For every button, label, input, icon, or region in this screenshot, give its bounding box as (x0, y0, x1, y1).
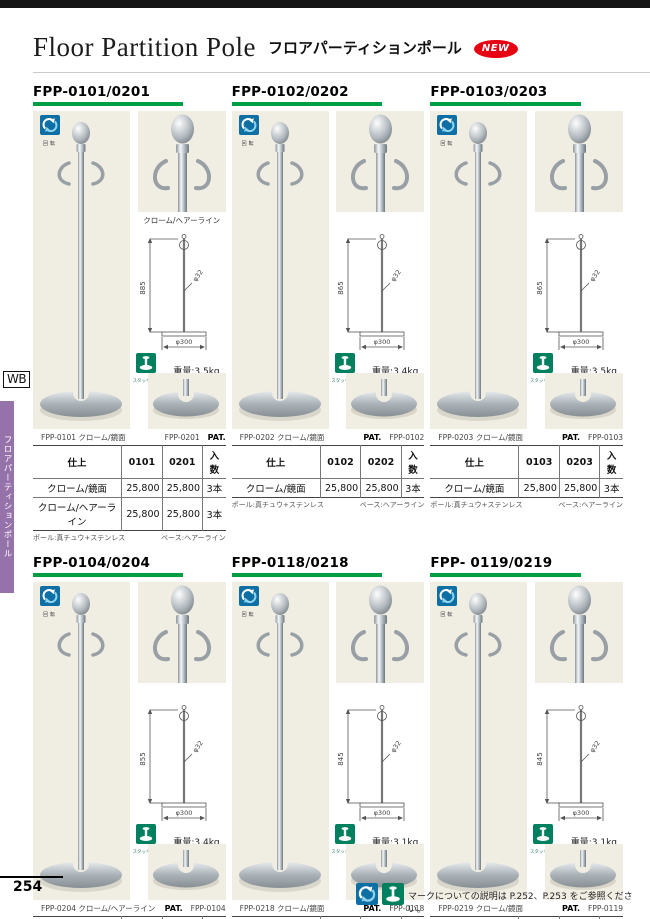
header-divider (33, 72, 650, 73)
pole-illustration (430, 111, 527, 429)
product-grid: FPP-0101/0201 (33, 84, 623, 919)
price-b-cell: 25,800 (361, 479, 401, 498)
col-finish: 仕上 (33, 446, 122, 479)
table-notes: ポール:真チュウ+ステンレス ベース:ヘアーライン (33, 533, 226, 543)
price-table-header-row: 仕上 0102 0202 入数 (232, 446, 425, 479)
product-photos: 回転 (430, 582, 623, 900)
dimension-diagram: 855 φ32 φ300 (136, 700, 226, 832)
base-diameter-dimension: φ300 (573, 338, 590, 346)
product-section: FPP-0118/0218 (232, 555, 425, 919)
col-model-a: 0102 (320, 446, 360, 479)
base-finish-note: ベース:ヘアーライン (161, 533, 226, 543)
pole-top-photo (138, 582, 226, 683)
pole-material-note: ポール:真チュウ+ステンレス (430, 500, 522, 510)
price-row: クローム/鏡面 25,800 25,800 3本 (232, 479, 425, 498)
product-code: FPP-0104/0204 (33, 555, 226, 571)
base-illustration (148, 844, 226, 900)
product-photos: 回転 (232, 111, 425, 429)
col-qty: 入数 (401, 446, 424, 479)
product-code: FPP-0102/0202 (232, 84, 425, 100)
base-photo (545, 373, 623, 429)
col-qty: 入数 (600, 446, 623, 479)
section-header: FPP-0102/0202 (232, 84, 425, 106)
price-a-cell: 25,800 (519, 479, 559, 498)
product-code: FPP-0118/0218 (232, 555, 425, 571)
price-a-cell: 25,800 (122, 498, 162, 531)
rotation-badge: 回転 (434, 115, 460, 147)
rotation-label: 回転 (43, 140, 57, 147)
base-diameter-dimension: φ300 (175, 338, 192, 346)
pole-top-illustration (535, 111, 623, 212)
section-header: FPP- 0119/0219 (430, 555, 623, 577)
rotation-label: 回転 (242, 611, 256, 618)
page-number: 254 (13, 879, 42, 895)
price-row: クローム/鏡面 25,800 25,800 3本 (430, 479, 623, 498)
pole-photo: 回転 (33, 582, 130, 900)
pole-top-illustration (336, 582, 424, 683)
product-section: FPP-0102/0202 (232, 84, 425, 543)
section-underline (33, 573, 183, 577)
section-header: FPP-0101/0201 (33, 84, 226, 106)
finish-label: クローム/ヘアーライン (138, 215, 226, 226)
caption-right: FPP-0102 (389, 433, 424, 442)
caption-mid: PAT. (363, 433, 381, 442)
pole-top-photo (336, 582, 424, 683)
col-finish: 仕上 (430, 446, 519, 479)
price-table: 仕上 0102 0202 入数 クローム/鏡面 25,800 25,800 3本 (232, 445, 425, 498)
rotation-label: 回転 (43, 611, 57, 618)
rotation-badge: 回転 (236, 586, 262, 618)
col-model-b: 0201 (162, 446, 202, 479)
price-table-header-row: 仕上 0101 0201 入数 (33, 446, 226, 479)
page-title: Floor Partition Pole (33, 34, 256, 61)
price-a-cell: 25,800 (122, 479, 162, 498)
price-b-cell: 25,800 (162, 498, 202, 531)
pole-photo: 回転 (33, 111, 130, 429)
qty-cell: 3本 (203, 479, 226, 498)
pole-illustration (430, 582, 527, 900)
pole-photo: 回転 (430, 582, 527, 900)
top-bar (0, 0, 650, 8)
pole-top-illustration (535, 582, 623, 683)
pole-diameter-dimension: φ32 (588, 268, 602, 283)
finish-cell: クローム/鏡面 (232, 479, 321, 498)
pole-height-dimension: 865 (536, 281, 544, 294)
new-badge: NEW (474, 40, 518, 58)
product-section: FPP- 0119/0219 (430, 555, 623, 919)
caption-left: FPP-0218 クローム/鏡面 (240, 903, 356, 914)
pole-photo: 回転 (232, 111, 329, 429)
product-section: FPP-0104/0204 (33, 555, 226, 919)
base-diameter-dimension: φ300 (374, 338, 391, 346)
product-code: FPP- 0119/0219 (430, 555, 623, 571)
base-finish-note: ベース:ヘアーライン (558, 500, 623, 510)
price-a-cell: 25,800 (320, 479, 360, 498)
photo-captions: FPP-0202 クローム/鏡面 PAT. FPP-0102 (232, 432, 425, 443)
col-model-b: 0203 (559, 446, 599, 479)
base-illustration (346, 373, 424, 429)
section-underline (430, 102, 580, 106)
page-header: Floor Partition Pole フロアパーティションポール NEW (33, 34, 640, 61)
section-underline (430, 573, 580, 577)
pole-material-note: ポール:真チュウ+ステンレス (232, 500, 324, 510)
table-notes: ポール:真チュウ+ステンレス ベース:ヘアーライン (430, 500, 623, 510)
product-photos: 回転 (430, 111, 623, 429)
pole-top-photo (336, 111, 424, 212)
product-section: FPP-0101/0201 (33, 84, 226, 543)
base-finish-note: ベース:ヘアーライン (360, 500, 425, 510)
caption-left: FPP-0204 クローム/ヘアーライン (41, 903, 157, 914)
base-illustration (545, 373, 623, 429)
product-section: FPP-0103/0203 (430, 84, 623, 543)
catalog-page: Floor Partition Pole フロアパーティションポール NEW W… (0, 0, 650, 919)
finish-cell: クローム/ヘアーライン (33, 498, 122, 531)
pole-height-dimension: 845 (337, 752, 345, 765)
rotation-icon (356, 883, 378, 909)
section-underline (33, 102, 183, 106)
rotation-badge: 回転 (37, 586, 63, 618)
footer-note-text: マークについての説明は P.252、P.253 をご参照ください。 (408, 883, 650, 915)
stacking-icon (382, 883, 404, 909)
rotation-label: 回転 (440, 611, 454, 618)
page-number-rule (0, 876, 63, 878)
qty-cell: 3本 (600, 479, 623, 498)
rotation-icon (40, 586, 60, 610)
base-diameter-dimension: φ300 (374, 809, 391, 817)
pole-photo: 回転 (232, 582, 329, 900)
base-photo (148, 844, 226, 900)
rotation-icon (40, 115, 60, 139)
caption-mid: FPP-0201 (165, 433, 200, 442)
caption-left: FPP-0202 クローム/鏡面 (240, 432, 356, 443)
col-qty: 入数 (203, 446, 226, 479)
col-finish: 仕上 (232, 446, 321, 479)
pole-top-illustration (138, 111, 226, 212)
dimension-diagram: 845 φ32 φ300 (533, 700, 623, 832)
pole-diameter-dimension: φ32 (191, 739, 205, 754)
pole-top-illustration (336, 111, 424, 212)
qty-cell: 3本 (401, 479, 424, 498)
pole-height-dimension: 855 (139, 752, 147, 765)
price-table-header-row: 仕上 0103 0203 入数 (430, 446, 623, 479)
base-diameter-dimension: φ300 (573, 809, 590, 817)
pole-height-dimension: 885 (139, 281, 147, 294)
rotation-icon (437, 115, 457, 139)
col-model-b: 0202 (361, 446, 401, 479)
caption-mid: PAT. (165, 904, 183, 913)
pole-illustration (232, 582, 329, 900)
rotation-label: 回転 (242, 140, 256, 147)
price-b-cell: 25,800 (559, 479, 599, 498)
rotation-badge: 回転 (236, 115, 262, 147)
sidebar-category-tab: フロアパーティションポール (0, 401, 14, 593)
dimension-diagram: 865 φ32 φ300 (533, 229, 623, 361)
section-underline (232, 573, 382, 577)
qty-cell: 3本 (203, 498, 226, 531)
rotation-label: 回転 (440, 140, 454, 147)
price-b-cell: 25,800 (162, 479, 202, 498)
rotation-icon (239, 586, 259, 610)
product-photos: 回転 クローム/ヘアーライン (33, 111, 226, 429)
pole-material-note: ポール:真チュウ+ステンレス (33, 533, 125, 543)
pole-top-illustration (138, 582, 226, 683)
finish-cell: クローム/鏡面 (33, 479, 122, 498)
product-photos: 回転 (232, 582, 425, 900)
product-code: FPP-0103/0203 (430, 84, 623, 100)
base-photo (148, 373, 226, 429)
rotation-icon (239, 115, 259, 139)
caption-left: FPP-0101 クローム/鏡面 (41, 432, 157, 443)
caption-right: PAT. (208, 433, 226, 442)
page-title-japanese: フロアパーティションポール (268, 37, 462, 61)
rotation-badge: 回転 (37, 115, 63, 147)
footer-note: マークについての説明は P.252、P.253 をご参照ください。 (356, 883, 650, 915)
pole-top-photo (535, 582, 623, 683)
base-illustration (148, 373, 226, 429)
dimension-diagram: 865 φ32 φ300 (334, 229, 424, 361)
product-photos: 回転 (33, 582, 226, 900)
pole-height-dimension: 845 (536, 752, 544, 765)
col-model-a: 0103 (519, 446, 559, 479)
caption-right: FPP-0103 (588, 433, 623, 442)
price-table: 仕上 0101 0201 入数 クローム/鏡面 25,800 25,800 3本… (33, 445, 226, 531)
dimension-diagram: 845 φ32 φ300 (334, 700, 424, 832)
pole-height-dimension: 865 (337, 281, 345, 294)
caption-right: FPP-0104 (191, 904, 226, 913)
pole-illustration (232, 111, 329, 429)
section-header: FPP-0104/0204 (33, 555, 226, 577)
pole-diameter-dimension: φ32 (389, 268, 403, 283)
base-photo (346, 373, 424, 429)
price-row: クローム/ヘアーライン 25,800 25,800 3本 (33, 498, 226, 531)
section-header: FPP-0118/0218 (232, 555, 425, 577)
pole-top-photo (535, 111, 623, 212)
pole-illustration (33, 582, 130, 900)
price-table: 仕上 0103 0203 入数 クローム/鏡面 25,800 25,800 3本 (430, 445, 623, 498)
photo-captions: FPP-0101 クローム/鏡面 FPP-0201 PAT. (33, 432, 226, 443)
wb-badge: WB (3, 371, 30, 388)
pole-diameter-dimension: φ32 (191, 268, 205, 283)
rotation-icon (437, 586, 457, 610)
col-model-a: 0101 (122, 446, 162, 479)
table-notes: ポール:真チュウ+ステンレス ベース:ヘアーライン (232, 500, 425, 510)
pole-diameter-dimension: φ32 (588, 739, 602, 754)
pole-illustration (33, 111, 130, 429)
pole-photo: 回転 (430, 111, 527, 429)
caption-left: FPP-0203 クローム/鏡面 (438, 432, 554, 443)
section-header: FPP-0103/0203 (430, 84, 623, 106)
rotation-badge: 回転 (434, 586, 460, 618)
caption-mid: PAT. (562, 433, 580, 442)
photo-captions: FPP-0204 クローム/ヘアーライン PAT. FPP-0104 (33, 903, 226, 914)
base-diameter-dimension: φ300 (175, 809, 192, 817)
product-code: FPP-0101/0201 (33, 84, 226, 100)
section-underline (232, 102, 382, 106)
finish-cell: クローム/鏡面 (430, 479, 519, 498)
photo-captions: FPP-0203 クローム/鏡面 PAT. FPP-0103 (430, 432, 623, 443)
pole-top-photo (138, 111, 226, 212)
pole-diameter-dimension: φ32 (389, 739, 403, 754)
price-row: クローム/鏡面 25,800 25,800 3本 (33, 479, 226, 498)
dimension-diagram: 885 φ32 φ300 (136, 229, 226, 361)
